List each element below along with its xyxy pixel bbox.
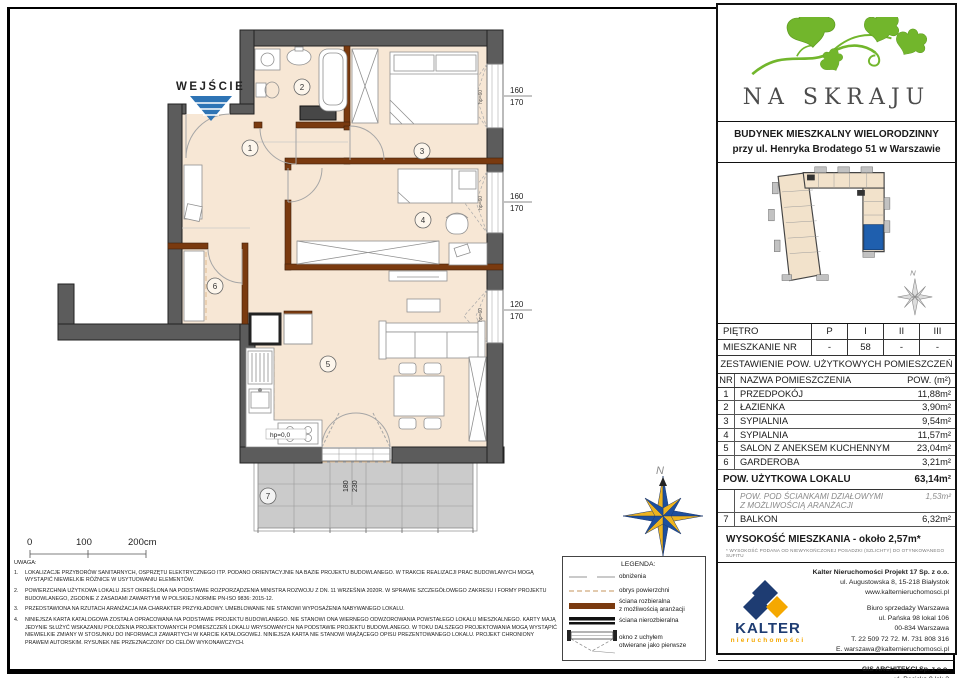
col-name: NAZWA POMIESZCZENIA [735,374,895,387]
lowered-ceiling-icon [567,573,619,581]
unit-col-3: - [919,340,955,355]
note-1-number: 1. [14,570,25,585]
col-nr: NR [718,374,735,387]
table-row: 4 SYPIALNIA 11,57m² [718,429,955,443]
row4-name: SYPIALNIA [735,429,895,442]
fixed-wall-icon [567,616,619,626]
brand-name: NA SKRAJU [743,85,930,110]
kalter-logo: KALTER nieruchomości [724,568,812,656]
legend-label-4: ściana nierozbieralna [619,617,701,625]
total-row: POW. UŻYTKOWA LOKALU 63,14m² [718,470,955,490]
note-4-text: NINIEJSZA KARTA KATALOGOWA ZOSTAŁA OPRAC… [25,617,557,647]
table-row: 5 SALON Z ANEKSEM KUCHENNYM 23,04m² [718,442,955,456]
balcony-row: 7 BALKON 6,32m² [718,513,955,527]
table-row: 2 ŁAZIENKA 3,90m² [718,401,955,415]
height-label: WYSOKOŚĆ MIESZKANIA - około 2,57m* [726,534,949,545]
areas-table-title: ZESTAWIENIE POW. UŻYTKOWYCH POMIESZCZEŃ [718,356,955,374]
legend-label-3: ściana rozbieralna z możliwością aranżac… [619,598,701,614]
balcony-area: 6,32m² [895,513,955,526]
legend-label-2: obrys powierzchni [619,587,701,595]
office-line5[interactable]: E. warszawa@kalternieruchomosci.pl [812,645,949,655]
height-note: * WYSOKOŚĆ PODANA OD NIEWYKOŃCZONEJ POSA… [726,548,949,558]
unit-col-2: - [883,340,919,355]
total-area: 63,14m² [915,474,952,485]
siteplan-north-label: N [910,269,916,278]
row3-name: SYPIALNIA [735,415,895,428]
ivy-logo-icon [732,17,942,83]
floor-col-3: III [919,324,955,339]
note-3-text: PRZEDSTAWIONA NA RZUTACH ARANŻACJA MA CH… [25,606,557,613]
developer-block: KALTER nieruchomości Kalter Nieruchomośc… [718,562,955,661]
hq-line2: ul. Augustowska 8, 15-218 Białystok [812,578,949,588]
siteplan-drawing: N [718,163,951,321]
hq-line1: Kalter Nieruchomości Projekt 17 Sp. z o.… [812,568,949,578]
row2-nr: 2 [718,401,735,414]
note-item: 2. POWIERZCHNIA UŻYTKOWA LOKALU JEST OKR… [14,588,557,603]
unit-col-p: - [811,340,847,355]
row3-nr: 3 [718,415,735,428]
floor-row: PIĘTRO P I II III [718,324,955,340]
area-outline-icon [567,587,619,595]
office-line4: T. 22 509 72 72. M. 731 808 316 [812,635,949,645]
kalter-name: KALTER [735,621,801,636]
partitions-area: 1,53m² [895,490,955,512]
office-line3: 00-834 Warszawa [812,624,949,634]
gis-line1: GIS ARCHITEKCI Sp. z o.o. [724,665,949,675]
row5-nr: 5 [718,442,735,455]
row1-area: 11,88m² [895,388,955,401]
row4-area: 11,57m² [895,429,955,442]
legend-item: obniżenia [567,570,701,583]
office-line1: Biuro sprzedaży Warszawa [812,604,949,614]
row4-nr: 4 [718,429,735,442]
height-block: WYSOKOŚĆ MIESZKANIA - około 2,57m* * WYS… [718,527,955,562]
notes-title: UWAGA: [14,560,557,568]
unit-label: MIESZKANIE NR [718,340,811,355]
notes-block: UWAGA: 1. LOKALIZACJE PRZYBORÓW SANITARN… [14,560,557,650]
row1-name: PRZEDPOKÓJ [735,388,895,401]
unit-row: MIESZKANIE NR - 58 - - [718,340,955,356]
legend-box: LEGENDA: obniżenia obrys powierzchni ści… [562,556,706,661]
row6-area: 3,21m² [895,456,955,469]
note-item: 3. PRZEDSTAWIONA NA RZUTACH ARANŻACJA MA… [14,606,557,613]
floor-col-2: II [883,324,919,339]
row5-area: 23,04m² [895,442,955,455]
floor-col-p: P [811,324,847,339]
floor-col-1: I [847,324,883,339]
table-row: 6 GARDEROBA 3,21m² [718,456,955,470]
note-2-number: 2. [14,588,25,603]
table-row: 1 PRZEDPOKÓJ 11,88m² [718,388,955,402]
balcony-label: BALKON [735,513,895,526]
unit-col-1: 58 [847,340,883,355]
note-item: 4. NINIEJSZA KARTA KATALOGOWA ZOSTAŁA OP… [14,617,557,647]
removable-wall-icon [567,601,619,611]
legend-item: obrys powierzchni [567,584,701,597]
note-3-number: 3. [14,606,25,613]
catalog-sheet: WEJŚCIE 1 2 3 4 5 6 7 160 170 160 170 12… [0,0,960,678]
row1-nr: 1 [718,388,735,401]
total-label: POW. UŻYTKOWA LOKALU [723,474,851,485]
floor-label: PIĘTRO [718,324,811,339]
note-4-number: 4. [14,617,25,647]
siteplan-compass-icon [898,279,933,316]
hq-line3[interactable]: www.kalternieruchomosci.pl [812,588,949,598]
tilt-window-icon [567,629,619,655]
siteplan-section: N [718,163,955,324]
office-line2: ul. Pańska 98 lokal 106 [812,614,949,624]
partitions-row: POW. POD ŚCIANKAMI DZIAŁOWYMI Z MOŻLIWOŚ… [718,490,955,513]
developer-addresses: Kalter Nieruchomości Projekt 17 Sp. z o.… [812,568,949,656]
row5-name: SALON Z ANEKSEM KUCHENNYM [735,442,895,455]
legend-label-5: okno z uchyłem otwierane jako pierwsze [619,634,701,650]
row3-area: 9,54m² [895,415,955,428]
kalter-sub: nieruchomości [731,637,806,644]
row2-name: ŁAZIENKA [735,401,895,414]
row2-area: 3,90m² [895,401,955,414]
col-area: POW. (m²) [895,374,955,387]
partitions-label: POW. POD ŚCIANKAMI DZIAŁOWYMI Z MOŻLIWOŚ… [735,490,895,512]
legend-title: LEGENDA: [621,561,705,568]
note-item: 1. LOKALIZACJE PRZYBORÓW SANITARNYCH, OS… [14,570,557,585]
building-line1: BUDYNEK MIESZKALNY WIELORODZINNY [724,127,949,142]
kalter-logo-icon [741,579,795,621]
note-2-text: POWIERZCHNIA UŻYTKOWA LOKALU JEST OKREŚL… [25,588,557,603]
note-1-text: LOKALIZACJE PRZYBORÓW SANITARNYCH, OSPRZ… [25,570,557,585]
table-row: 3 SYPIALNIA 9,54m² [718,415,955,429]
architect-block: GIS ARCHITEKCI Sp. z o.o. ul. Pęcicka 9 … [718,660,955,678]
legend-item: okno z uchyłem otwierane jako pierwsze [567,629,701,655]
highlighted-unit [864,225,883,250]
legend-item: ściana rozbieralna z możliwością aranżac… [567,598,701,614]
brand-section: NA SKRAJU [718,5,955,122]
info-panel: NA SKRAJU BUDYNEK MIESZKALNY WIELORODZIN… [716,3,957,655]
legend-item: ściana nierozbieralna [567,615,701,628]
building-line2: przy ul. Henryka Brodatego 51 w Warszawi… [724,142,949,157]
balcony-nr: 7 [718,513,735,526]
areas-header-row: NR NAZWA POMIESZCZENIA POW. (m²) [718,374,955,388]
row6-name: GARDEROBA [735,456,895,469]
building-title: BUDYNEK MIESZKALNY WIELORODZINNY przy ul… [718,122,955,163]
row6-nr: 6 [718,456,735,469]
legend-label-1: obniżenia [619,573,701,581]
partitions-nr-cell [718,490,735,512]
